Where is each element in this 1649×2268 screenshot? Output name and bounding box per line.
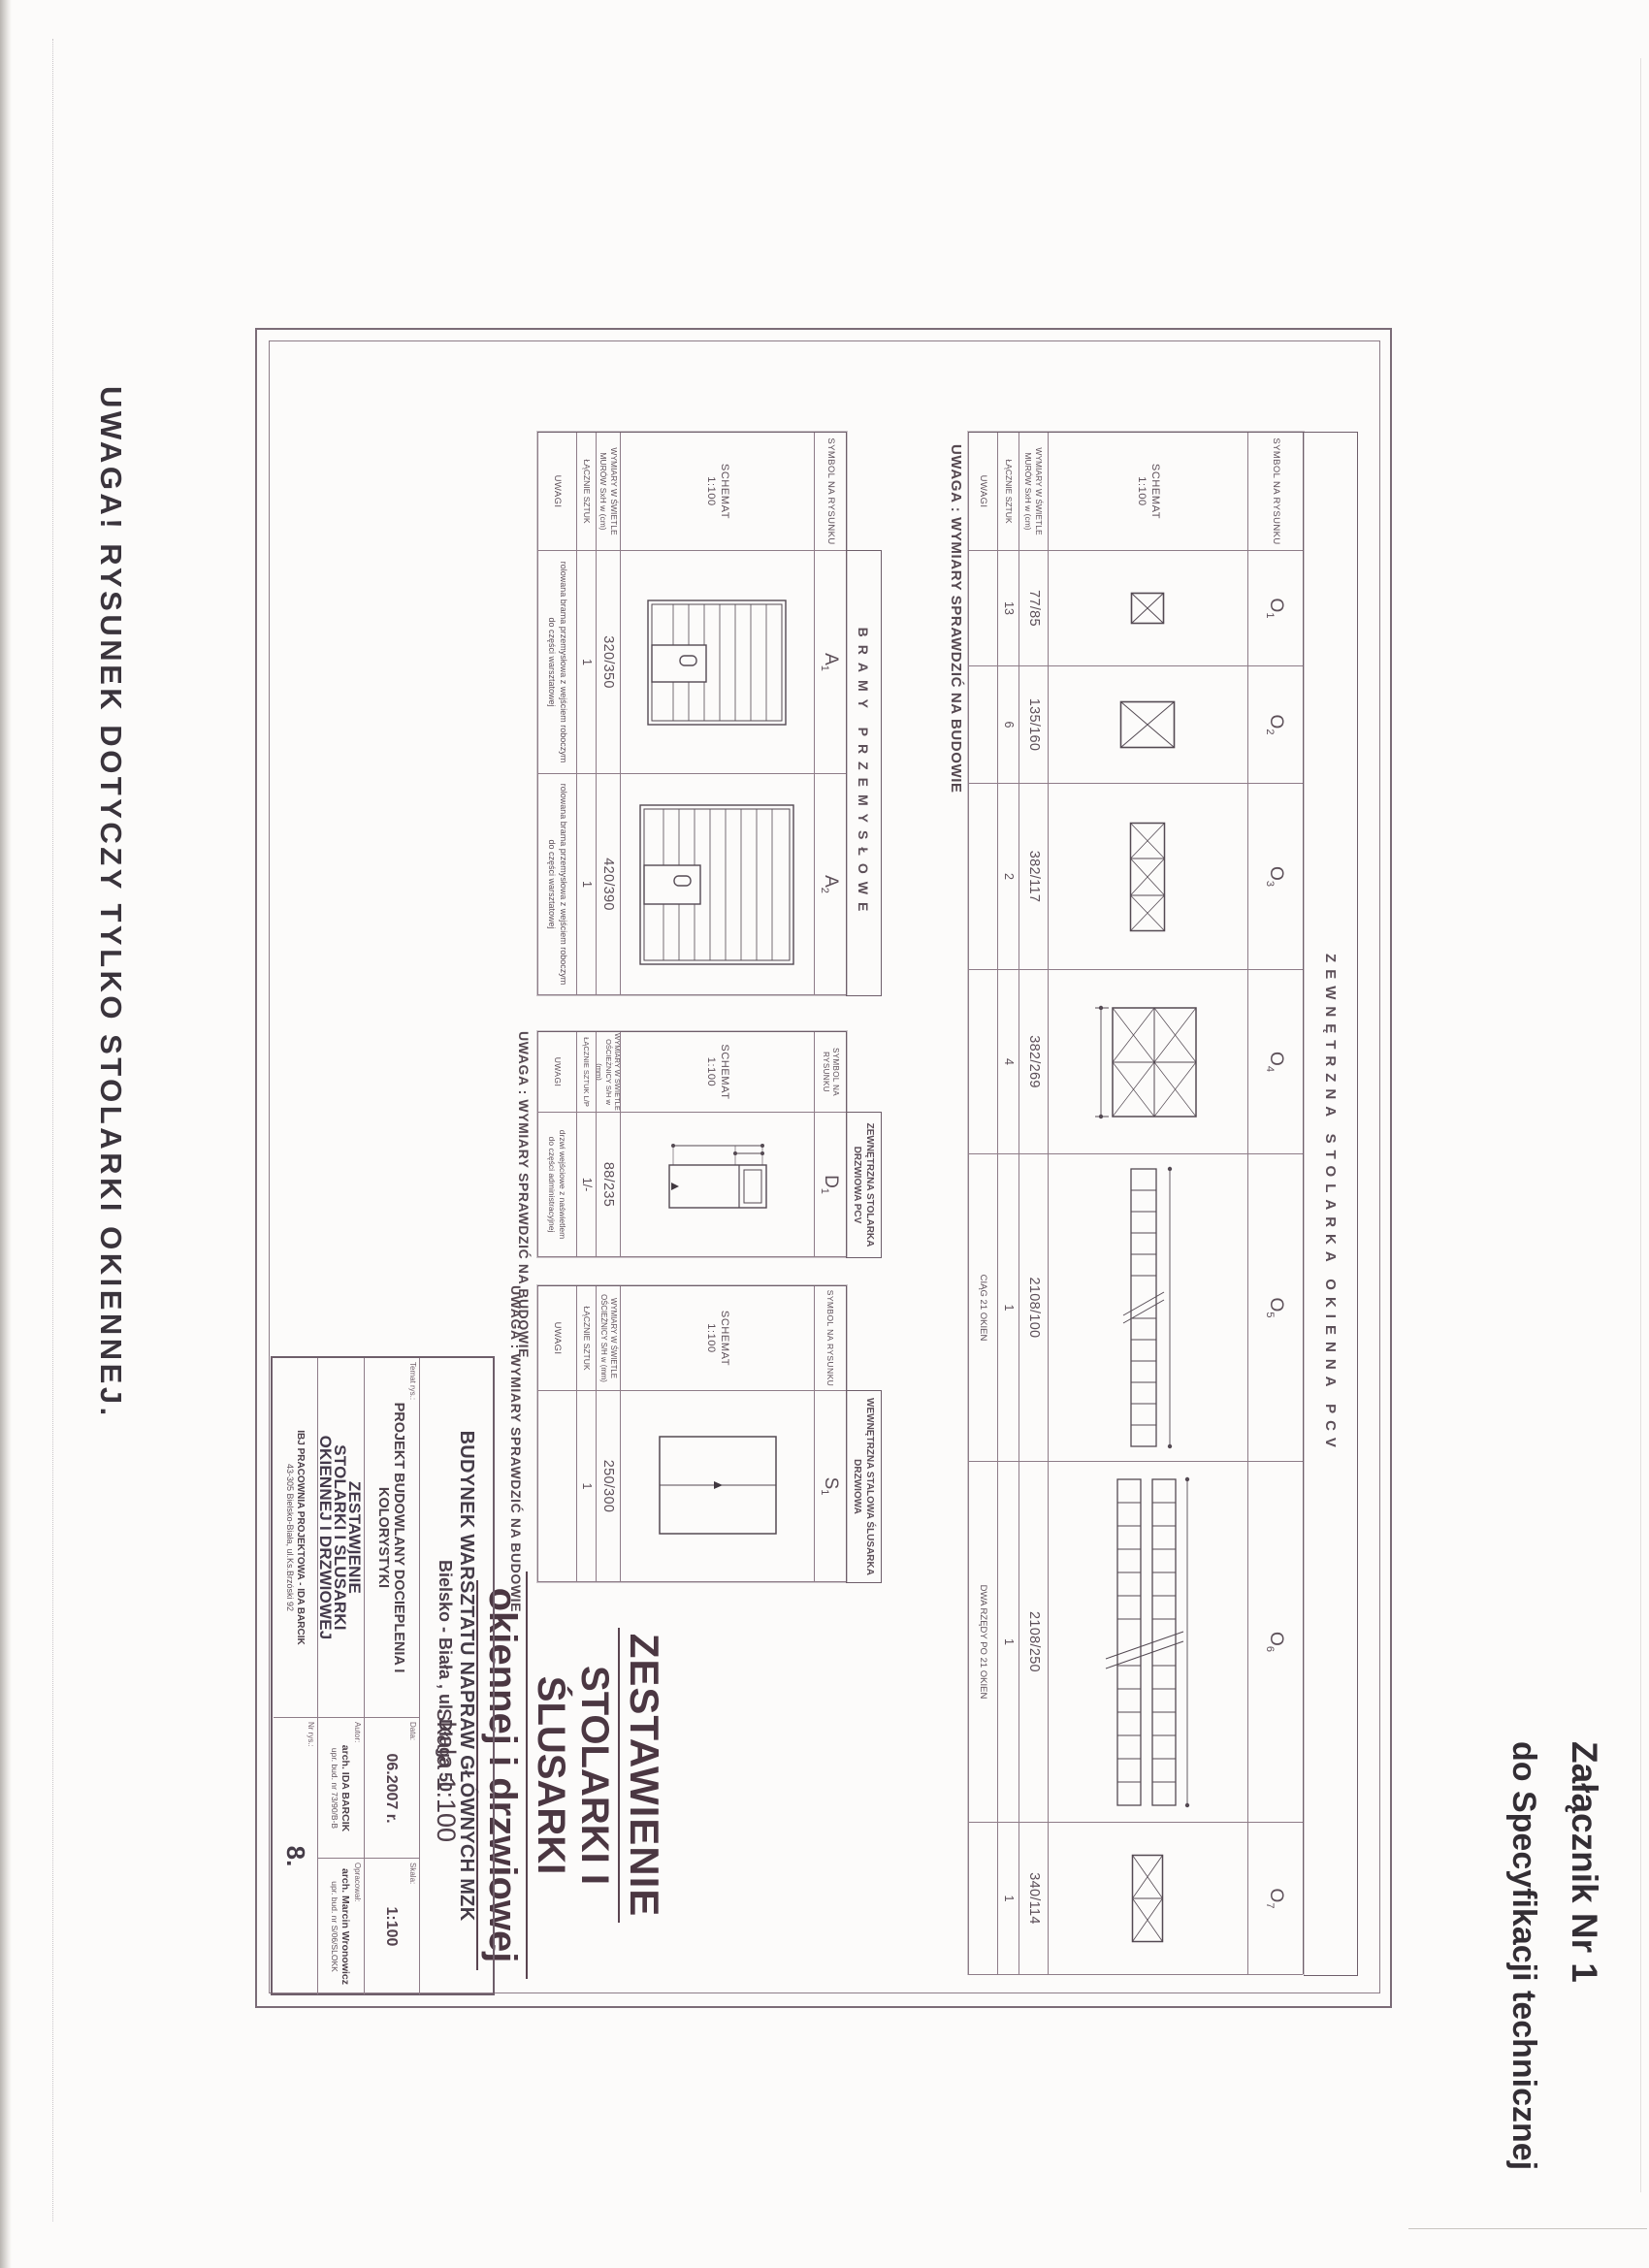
window-symbol-o4: O4	[1247, 970, 1303, 1154]
gates-table-grid: SYMBOL NA RYSUNKU A1 A2 SCHEMAT 1:100	[537, 432, 847, 995]
door-qty-s1: 1	[576, 1391, 596, 1582]
door-drawing-d1-icon	[620, 1113, 814, 1257]
gate-qty-a2: 1	[576, 774, 596, 995]
office-address: 43-305 Bielsko-Biała, ul.Ks.Brzóski 92	[285, 1464, 295, 1611]
door-pcv-symbol-label: SYMBOL NA RYSUNKU	[814, 1032, 846, 1113]
window-drawing-o2-icon	[1048, 666, 1247, 784]
windows-uwagi-label: UWAGI	[968, 433, 997, 551]
object-address: Bielsko - Biała , ul. Długa 50	[436, 1560, 456, 1792]
door-steel-schemat-label: SCHEMAT 1:100	[620, 1286, 814, 1391]
gates-symbol-label: SYMBOL NA RYSUNKU	[814, 433, 846, 551]
door-dims-d1: 88/235	[596, 1113, 620, 1257]
gate-note-a1: rolowana brama przemysłowa z wejściem ro…	[537, 551, 576, 774]
date-label: Data:	[408, 1722, 417, 1740]
door-pcv-uwagi-label: UWAGI	[537, 1032, 576, 1113]
title-block-drafter: Opracował: arch. Marcin Wronowicz upr. b…	[317, 1858, 365, 1994]
door-drawing-s1-icon	[620, 1391, 814, 1582]
author-license: upr. bud. nr 73/90/B-B	[330, 1748, 339, 1829]
door-symbol-d1: D1	[814, 1113, 846, 1257]
scale-label: Skala:	[408, 1863, 417, 1884]
drafter-label: Opracował:	[353, 1863, 362, 1901]
windows-table-banner: ZEWNĘTRZNA STOLARKA OKIENNA PCV	[1304, 432, 1358, 1976]
gate-qty-a1: 1	[576, 551, 596, 774]
date-value: 06.2007 r.	[383, 1753, 401, 1823]
site-check-note-door-steel: UWAGA : WYMIARY SPRAWDZIĆ NA BUDOWIE	[508, 1285, 524, 1612]
drafter-license: upr. bud. nr S/06/SLOKK	[330, 1881, 339, 1972]
window-note-o2	[968, 666, 997, 784]
main-title-line1: ZESTAWIENIE	[618, 1628, 667, 1924]
window-note-o1	[968, 551, 997, 666]
window-drawing-o5-icon	[1048, 1154, 1247, 1462]
gate-drawing-a1-icon	[620, 551, 814, 774]
window-dims-o4: 382/269	[1018, 970, 1048, 1154]
window-qty-o7: 1	[997, 1823, 1018, 1975]
door-pcv-table: ZEWNĘTRZNA STOLARKA DRZWIOWA PCV SYMBOL …	[538, 1031, 882, 1256]
attachment-line2: do Specyfikacji technicznej	[1494, 1741, 1554, 2265]
scanned-drawing-page: { "page": { "attachment_line1": "Załączn…	[0, 0, 1649, 2268]
title-block-object: BUDYNEK WARSZTATU NAPRAW GŁÓWNYCH MZK Bi…	[420, 1358, 493, 1993]
door-steel-grid: SYMBOL NA RYSUNKU S1 SCHEMAT 1:100 WYMIA…	[537, 1285, 847, 1582]
drawing-title-line2: STOLARKI I ŚLUSARKI	[334, 1444, 348, 1630]
object-name: BUDYNEK WARSZTATU NAPRAW GŁÓWNYCH MZK	[456, 1431, 478, 1922]
window-drawing-o4-icon	[1048, 970, 1247, 1154]
drawing-sheet: Załącznik Nr 1 do Specyfikacji techniczn…	[0, 0, 1649, 2268]
gate-symbol-a1: A1	[814, 551, 846, 774]
window-dims-o1: 77/85	[1018, 551, 1048, 666]
office-name: IBJ PRACOWNIA PROJEKTOWA - IDA BARCIK	[295, 1430, 306, 1645]
gate-drawing-a2-icon	[620, 774, 814, 995]
window-dims-o6: 2108/250	[1018, 1462, 1048, 1823]
attachment-line1: Załącznik Nr 1	[1554, 1741, 1614, 2265]
title-block: BUDYNEK WARSZTATU NAPRAW GŁÓWNYCH MZK Bi…	[271, 1356, 495, 1995]
windows-schemat-label: SCHEMAT 1:100	[1048, 433, 1247, 551]
title-block-author: Autor: arch. IDA BARCIK upr. bud. nr 73/…	[317, 1717, 365, 1859]
door-steel-banner: WEWNĘTRZNA STALOWA ŚLUSARKA DRZWIOWA	[846, 1390, 882, 1583]
gates-table: BRAMY PRZEMYSŁOWE SYMBOL NA RYSUNKU A1 A…	[538, 432, 882, 994]
gates-dims-label: WYMIARY W ŚWIETLE MURÓW SxH w (cm)	[596, 433, 620, 551]
windows-table: ZEWNĘTRZNA STOLARKA OKIENNA PCV SYMBOL N…	[970, 432, 1358, 1974]
attachment-annotation: Załącznik Nr 1 do Specyfikacji techniczn…	[1494, 1741, 1614, 2265]
drawing-title-line3: OKIENNEJ I DRZWIOWEJ	[319, 1436, 334, 1640]
door-symbol-s1: S1	[814, 1391, 846, 1582]
windows-dims-label: WYMIARY W ŚWIETLE MURÓW SxH w (cm)	[1018, 433, 1048, 551]
main-title-line2: STOLARKI I ŚLUSARKI	[526, 1571, 616, 1979]
project-name: PROJEKT BUDOWLANY DOCIEPLENIA I KOLORYST…	[376, 1358, 407, 1717]
window-qty-o5: 1	[997, 1154, 1018, 1462]
door-pcv-qty-label: ŁĄCZNIE SZTUK L/P	[576, 1032, 596, 1113]
title-block-drawing-title: ZESTAWIENIE STOLARKI I ŚLUSARKI OKIENNEJ…	[317, 1358, 365, 1717]
door-pcv-banner: ZEWNĘTRZNA STOLARKA DRZWIOWA PCV	[846, 1112, 882, 1258]
window-symbol-o5: O5	[1247, 1154, 1303, 1462]
author-name: arch. IDA BARCIK	[339, 1745, 351, 1831]
gate-symbol-a2: A2	[814, 774, 846, 995]
gate-note-a2: rolowana brama przemysłowa z wejściem ro…	[537, 774, 576, 995]
door-steel-symbol-label: SYMBOL NA RYSUNKU	[814, 1286, 846, 1391]
windows-qty-label: ŁĄCZNIE SZTUK	[997, 433, 1018, 551]
drawing-title-line1: ZESTAWIENIE	[348, 1481, 363, 1594]
door-steel-uwagi-label: UWAGI	[537, 1286, 576, 1391]
window-dims-o7: 340/114	[1018, 1823, 1048, 1975]
site-check-note-windows: UWAGA : WYMIARY SPRAWDZIĆ NA BUDOWIE	[948, 444, 964, 794]
window-symbol-o1: O1	[1247, 551, 1303, 666]
window-qty-o4: 4	[997, 970, 1018, 1154]
window-drawing-o7-icon	[1048, 1823, 1247, 1975]
window-symbol-o6: O6	[1247, 1462, 1303, 1823]
door-pcv-schemat-label: SCHEMAT 1:100	[620, 1032, 814, 1113]
window-drawing-o6-icon	[1048, 1462, 1247, 1823]
window-symbol-o3: O3	[1247, 784, 1303, 970]
window-note-o6: DWA RZĘDY PO 21 OKIEN	[968, 1462, 997, 1823]
door-note-d1: drzwi wejściowe z naświetlem do części a…	[537, 1113, 576, 1257]
window-drawing-o1-icon	[1048, 551, 1247, 666]
gates-table-banner: BRAMY PRZEMYSŁOWE	[846, 550, 882, 996]
windows-symbol-label: SYMBOL NA RYSUNKU	[1247, 433, 1303, 551]
number-label: Nr rys.:	[307, 1722, 315, 1747]
window-dims-o3: 382/117	[1018, 784, 1048, 970]
window-qty-o1: 13	[997, 551, 1018, 666]
number-value: 8.	[280, 1846, 310, 1867]
door-steel-table: WEWNĘTRZNA STALOWA ŚLUSARKA DRZWIOWA SYM…	[538, 1285, 882, 1581]
door-dims-s1: 250/300	[596, 1391, 620, 1582]
drafter-name: arch. Marcin Wronowicz	[339, 1868, 351, 1985]
temat-label: Temat rys.:	[408, 1362, 417, 1400]
door-qty-d1: 1/-	[576, 1113, 596, 1257]
window-qty-o2: 6	[997, 666, 1018, 784]
door-pcv-grid: SYMBOL NA RYSUNKU D1 SCHEMAT 1:100	[537, 1031, 847, 1257]
scale-value: 1:100	[383, 1907, 401, 1947]
gates-schemat-label: SCHEMAT 1:100	[620, 433, 814, 551]
door-pcv-dims-label: WYMIARY W ŚWIETLE OŚCIEŻNICY S/H w (mm)	[596, 1032, 620, 1113]
window-dims-o2: 135/160	[1018, 666, 1048, 784]
gate-dims-a1: 320/350	[596, 551, 620, 774]
title-block-office: IBJ PRACOWNIA PROJEKTOWA - IDA BARCIK 43…	[274, 1358, 318, 1717]
handnote-windows-only: UWAGA! RYSUNEK DOTYCZY TYLKO STOLARKI OK…	[93, 386, 128, 1419]
window-drawing-o3-icon	[1048, 784, 1247, 970]
door-steel-qty-label: ŁĄCZNIE SZTUK	[576, 1286, 596, 1391]
window-qty-o3: 2	[997, 784, 1018, 970]
title-block-number: Nr rys.: 8.	[274, 1717, 318, 1994]
door-note-s1	[537, 1391, 576, 1582]
gates-uwagi-label: UWAGI	[537, 433, 576, 551]
title-block-project: Temat rys.: PROJEKT BUDOWLANY DOCIEPLENI…	[364, 1358, 420, 1717]
gates-qty-label: ŁĄCZNIE SZTUK	[576, 433, 596, 551]
author-label: Autor:	[353, 1722, 362, 1742]
window-qty-o6: 1	[997, 1462, 1018, 1823]
window-note-o4	[968, 970, 997, 1154]
windows-table-grid: SYMBOL NA RYSUNKU O1 O2 O3 O4 O5 O6 O7 S…	[968, 432, 1304, 1974]
window-dims-o5: 2108/100	[1018, 1154, 1048, 1462]
window-note-o7	[968, 1823, 997, 1975]
window-note-o5: CIĄG 21 OKIEN	[968, 1154, 997, 1462]
gate-dims-a2: 420/390	[596, 774, 620, 995]
window-symbol-o2: O2	[1247, 666, 1303, 784]
door-steel-dims-label: WYMIARY W ŚWIETLE OŚCIEŻNICY S/H w (mm)	[596, 1286, 620, 1391]
title-block-scale: Skala: 1:100	[364, 1858, 420, 1994]
window-note-o3	[968, 784, 997, 970]
window-symbol-o7: O7	[1247, 1823, 1303, 1975]
title-block-date: Data: 06.2007 r.	[364, 1717, 420, 1859]
